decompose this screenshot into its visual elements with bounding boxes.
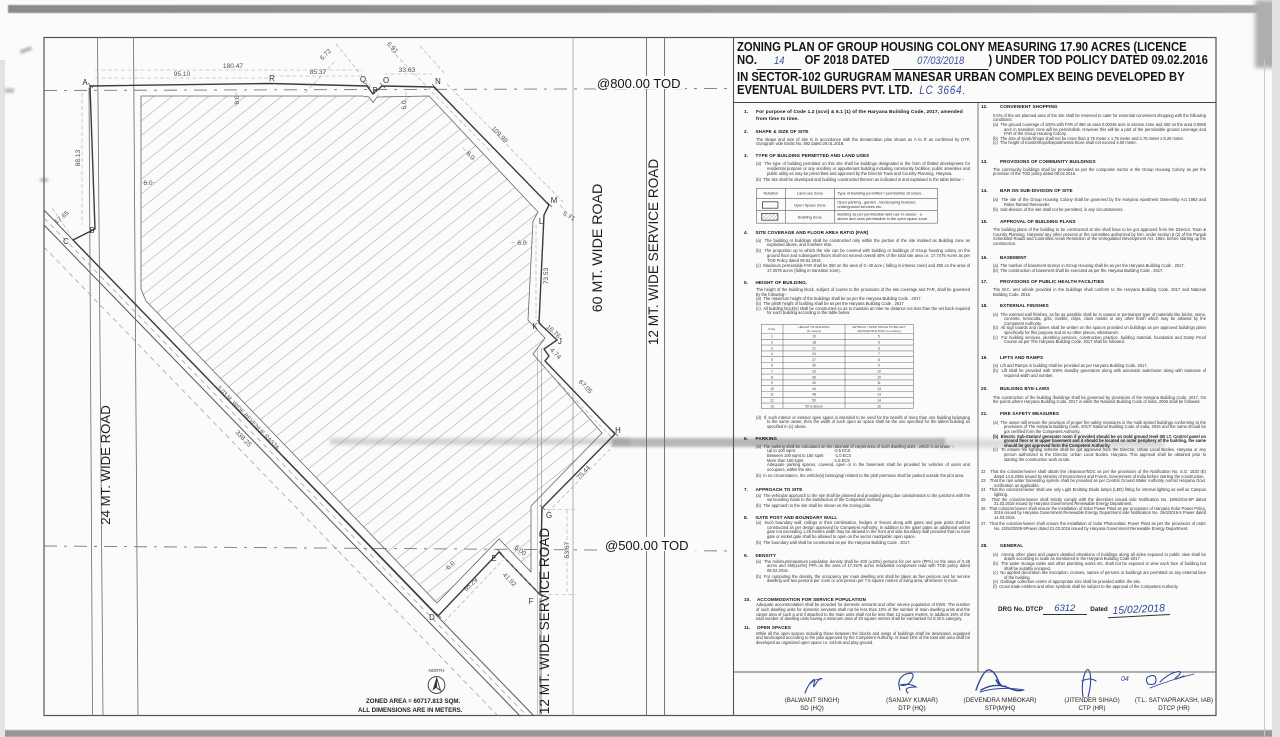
svg-text:AROUND BUILDING (in meters): AROUND BUILDING (in meters)	[857, 329, 900, 333]
svg-text:Type of Building permitted / p: Type of Building permitted / permissible…	[837, 191, 921, 196]
svg-text:24: 24	[812, 352, 816, 356]
svg-text:10: 10	[770, 387, 774, 391]
svg-text:6.0: 6.0	[401, 100, 408, 109]
svg-text:A: A	[82, 78, 88, 87]
svg-text:underground services etc.: underground services etc.	[837, 204, 882, 209]
svg-text:11: 11	[877, 381, 881, 385]
svg-text:44: 44	[812, 387, 816, 391]
svg-text:15: 15	[812, 335, 816, 339]
svg-text:04: 04	[1121, 676, 1129, 683]
svg-text:M: M	[551, 196, 558, 205]
svg-text:13: 13	[770, 405, 774, 409]
svg-text:K: K	[532, 322, 538, 331]
svg-text:1: 1	[771, 335, 773, 339]
svg-text:7: 7	[771, 370, 773, 374]
svg-text:33: 33	[812, 370, 816, 374]
svg-text:R: R	[269, 74, 275, 83]
svg-text:5: 5	[878, 335, 880, 339]
svg-text:17.65: 17.65	[53, 210, 70, 226]
svg-text:L: L	[539, 217, 544, 226]
svg-text:6: 6	[878, 347, 880, 351]
svg-text:10: 10	[877, 376, 881, 380]
svg-text:6: 6	[771, 364, 773, 368]
svg-text:O: O	[383, 76, 389, 85]
svg-text:85.37: 85.37	[310, 69, 327, 76]
svg-text:E: E	[491, 554, 496, 563]
svg-text:180.47: 180.47	[223, 63, 244, 70]
svg-text:ZONED AREA = 60717.813 SQM.: ZONED AREA = 60717.813 SQM.	[366, 698, 461, 705]
svg-text:12 MT. WIDE SERVICE ROAD: 12 MT. WIDE SERVICE ROAD	[537, 528, 552, 715]
svg-text:24 MT. WIDE ROAD: 24 MT. WIDE ROAD	[98, 405, 113, 524]
svg-text:NORTH: NORTH	[429, 668, 445, 673]
svg-text:40: 40	[812, 381, 816, 385]
svg-text:50 & above: 50 & above	[805, 405, 822, 409]
svg-text:6.71: 6.71	[561, 210, 576, 223]
svg-text:5: 5	[771, 358, 773, 362]
svg-text:9: 9	[878, 364, 880, 368]
svg-text:18: 18	[812, 341, 816, 345]
svg-text:B: B	[89, 226, 94, 235]
svg-text:4: 4	[771, 352, 773, 356]
svg-text:16: 16	[877, 405, 881, 409]
svg-text:Land use Zone: Land use Zone	[797, 191, 823, 196]
svg-text:48: 48	[812, 393, 816, 397]
svg-text:above and uses permissible in: above and uses permissible in the open s…	[837, 216, 928, 221]
svg-text:14: 14	[877, 393, 881, 397]
svg-text:55.29: 55.29	[463, 576, 480, 593]
svg-text:14: 14	[877, 399, 881, 403]
svg-text:33.63: 33.63	[399, 67, 416, 74]
svg-text:12: 12	[770, 399, 774, 403]
svg-text:75.44: 75.44	[576, 464, 593, 481]
svg-text:9: 9	[771, 381, 773, 385]
svg-text:F: F	[529, 597, 534, 606]
svg-text:D: D	[429, 613, 435, 622]
svg-text:Notation: Notation	[763, 191, 778, 196]
svg-text:8: 8	[771, 376, 773, 380]
svg-text:3: 3	[771, 347, 773, 351]
svg-text:12 MT. WIDE SERVICE ROAD: 12 MT. WIDE SERVICE ROAD	[646, 159, 661, 346]
svg-text:N: N	[435, 77, 441, 86]
svg-text:7: 7	[878, 352, 880, 356]
svg-text:6.0: 6.0	[234, 95, 241, 104]
svg-text:60 MT. WIDE ROAD: 60 MT. WIDE ROAD	[590, 184, 606, 313]
svg-text:10: 10	[877, 370, 881, 374]
svg-text:S.No.: S.No.	[768, 327, 776, 331]
svg-text:11: 11	[770, 393, 774, 397]
svg-text:67.05: 67.05	[577, 379, 594, 396]
svg-text:6.0: 6.0	[517, 240, 526, 247]
svg-text:13: 13	[877, 387, 881, 391]
svg-text:88.13: 88.13	[75, 149, 82, 166]
svg-text:53.67: 53.67	[564, 541, 571, 558]
svg-text:30: 30	[812, 364, 816, 368]
svg-text:27: 27	[812, 358, 816, 362]
svg-text:109.99: 109.99	[490, 125, 509, 145]
svg-text:8: 8	[878, 358, 880, 362]
svg-text:338.25: 338.25	[234, 429, 253, 449]
svg-text:(in meters): (in meters)	[807, 329, 821, 333]
svg-text:J: J	[558, 337, 562, 346]
svg-text:50: 50	[812, 399, 816, 403]
svg-text:73.53: 73.53	[543, 267, 550, 284]
svg-text:ALL DIMENSIONS ARE IN METERS.: ALL DIMENSIONS ARE IN METERS.	[358, 707, 463, 714]
svg-text:41.92: 41.92	[501, 572, 518, 589]
svg-text:Building Zone: Building Zone	[798, 215, 822, 220]
svg-text:2: 2	[771, 341, 773, 345]
svg-text:@800.00 TOD: @800.00 TOD	[597, 76, 681, 91]
svg-text:C: C	[63, 237, 69, 246]
svg-text:@500.00 TOD: @500.00 TOD	[605, 538, 689, 553]
svg-text:6.91: 6.91	[385, 41, 399, 55]
svg-text:P: P	[372, 86, 377, 95]
svg-text:Q: Q	[360, 75, 366, 84]
svg-text:4.74: 4.74	[548, 347, 562, 361]
svg-text:6.0: 6.0	[143, 180, 152, 187]
svg-text:6: 6	[878, 341, 880, 345]
svg-text:21: 21	[812, 347, 816, 351]
svg-text:6.72: 6.72	[319, 48, 333, 62]
svg-text:G: G	[546, 511, 552, 520]
svg-text:95.10: 95.10	[174, 71, 191, 78]
svg-text:Open Space Zone: Open Space Zone	[794, 203, 826, 208]
svg-text:36: 36	[812, 376, 816, 380]
